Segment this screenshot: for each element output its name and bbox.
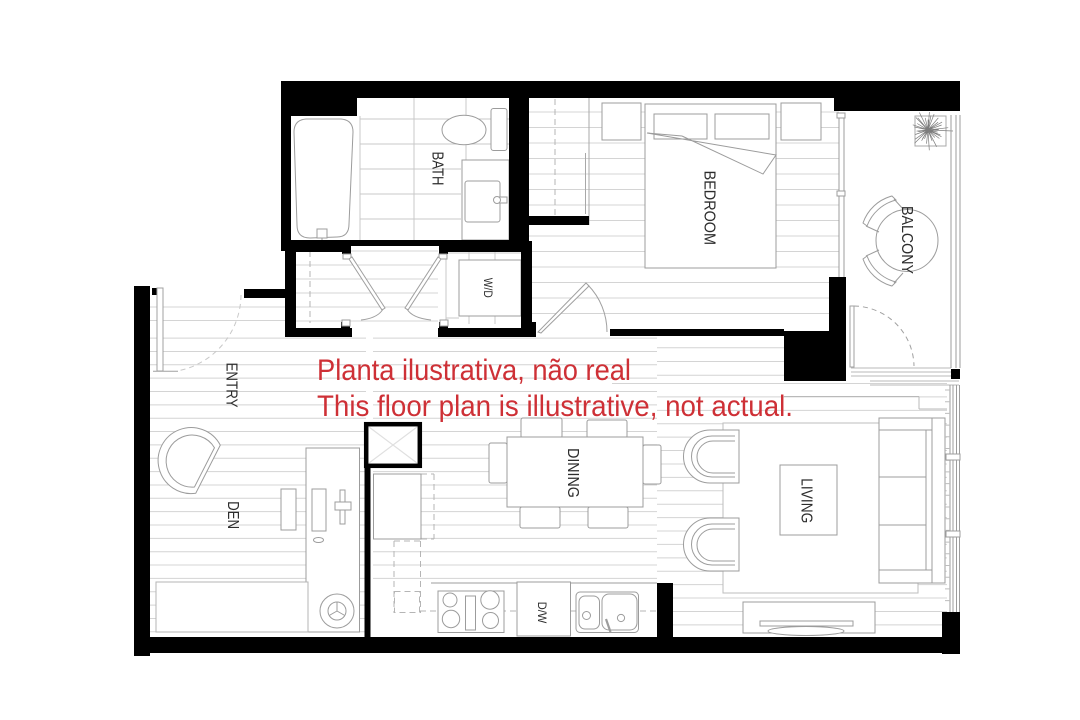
svg-text:DEN: DEN [224,501,241,529]
svg-text:LIVING: LIVING [798,478,815,523]
svg-text:D/W: D/W [535,602,549,624]
svg-text:Planta ilustrativa, não real: Planta ilustrativa, não real [317,354,631,387]
svg-text:BALCONY: BALCONY [898,206,915,274]
svg-text:BEDROOM: BEDROOM [700,171,717,245]
svg-text:DINING: DINING [564,448,581,498]
svg-text:ENTRY: ENTRY [223,363,240,408]
svg-text:W/D: W/D [481,278,495,298]
svg-text:This floor plan is illustrativ: This floor plan is illustrative, not act… [317,390,793,423]
svg-text:BATH: BATH [429,152,446,186]
